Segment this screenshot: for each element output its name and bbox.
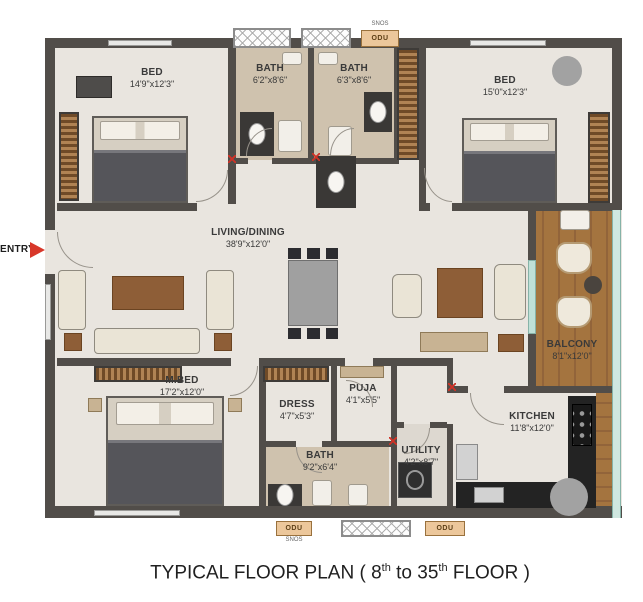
window-mbed <box>94 510 180 516</box>
toilet-icon-bath3 <box>348 484 368 506</box>
room-name: KITCHEN <box>472 410 592 423</box>
wall-living-mbed <box>57 358 231 366</box>
window-bed1 <box>108 40 172 46</box>
wardrobe-dress <box>263 366 329 382</box>
wall-living-puja <box>373 358 449 366</box>
wall-dress-bath3-a <box>259 441 296 447</box>
title-sup: th <box>382 562 391 574</box>
toilet-icon-bath2 <box>364 92 392 132</box>
kitchen-sink-icon <box>474 487 504 503</box>
door-marker <box>228 155 236 163</box>
vent-shaft-bottom <box>341 520 411 537</box>
balcony-chair-2 <box>556 296 592 328</box>
window-bed2 <box>470 40 546 46</box>
sink-icon-bath3 <box>268 484 302 506</box>
nightstand-1 <box>88 398 102 412</box>
label-bed1: BED 14'9"x12'3" <box>92 66 212 91</box>
label-puja: PUJA 4'1"x5'5" <box>324 382 402 407</box>
svcs-text-top: SNOS <box>361 21 399 27</box>
door-marker <box>312 153 320 161</box>
room-dims: 38'9"x12'0" <box>168 239 328 251</box>
wall-living-balcony-a <box>528 203 536 260</box>
label-bath3: BATH 9'2"x6'4" <box>275 449 365 474</box>
door-marker <box>448 383 456 391</box>
wall-bath2-bottom-c <box>354 158 398 164</box>
planter-balcony <box>560 210 590 230</box>
room-name: BATH <box>311 62 397 75</box>
label-utility: UTILITY 4'2"x8'7" <box>380 444 462 469</box>
room-name: BED <box>445 74 565 87</box>
wall-puja-utility <box>391 358 397 508</box>
side-table-3 <box>498 334 524 352</box>
title-text: TYPICAL FLOOR PLAN ( 8 <box>150 562 382 583</box>
wall-shaft-bed2 <box>419 48 426 204</box>
wall-outer-right-upper <box>612 38 622 210</box>
wall-kitchen-top-b <box>504 386 612 393</box>
bed-icon-bed1 <box>92 116 188 203</box>
nightstand-2 <box>228 398 242 412</box>
svcs-text-bottom: SNOS <box>276 537 312 543</box>
room-dims: 11'8"x12'0" <box>472 423 592 435</box>
side-table-1 <box>64 333 82 351</box>
label-bed2: BED 15'0"x12'3" <box>445 74 565 99</box>
room-name: BED <box>92 66 212 79</box>
sofa-long <box>94 328 200 354</box>
wall-utility-top-b <box>430 422 447 428</box>
room-name: BALCONY <box>527 338 617 351</box>
room-dims: 14'9"x12'3" <box>92 79 212 91</box>
accent-chair-1 <box>392 274 422 318</box>
bed-icon-mbed <box>106 396 224 506</box>
kitchen-side-ledge <box>596 390 612 508</box>
label-living: LIVING/DINING 38'9"x12'0" <box>168 226 328 251</box>
wall-bed1-living <box>57 203 197 211</box>
shower-icon-bath3 <box>312 480 332 506</box>
room-dims: 17'2"x12'0" <box>122 387 242 399</box>
vent-shaft-top-1 <box>233 28 291 48</box>
entry-arrow-icon <box>30 242 45 258</box>
odu-unit-bottom-left: ODU <box>276 521 312 536</box>
room-dims: 6'2"x8'6" <box>227 75 313 87</box>
room-dims: 6'3"x8'6" <box>311 75 397 87</box>
balcony-chair-1 <box>556 242 592 274</box>
room-name: LIVING/DINING <box>168 226 328 239</box>
room-dims: 15'0"x12'3" <box>445 87 565 99</box>
wardrobe-bed2 <box>588 112 610 203</box>
wall-outer-left <box>45 38 55 518</box>
plan-title: TYPICAL FLOOR PLAN ( 8th to 35th FLOOR ) <box>80 562 600 584</box>
room-dims: 4'1"x5'5" <box>324 395 402 407</box>
tv-console <box>420 332 488 352</box>
room-name: PUJA <box>324 382 402 395</box>
title-sup: th <box>438 562 447 574</box>
label-balcony: BALCONY 8'1"x12'0" <box>527 338 617 363</box>
rug-living <box>112 276 184 310</box>
bed-icon-bed2 <box>462 118 557 203</box>
service-shaft <box>397 48 419 160</box>
side-table-2 <box>214 333 232 351</box>
window-living <box>45 284 51 340</box>
toilet-icon <box>316 156 356 208</box>
dining-chairs-bottom <box>288 328 338 339</box>
shower-icon-bath1 <box>278 120 302 152</box>
label-kitchen: KITCHEN 11'8"x12'0" <box>472 410 592 435</box>
odu-unit-bottom-right: ODU <box>425 521 465 536</box>
accent-chair-2 <box>494 264 526 320</box>
entry-opening <box>45 230 55 274</box>
room-name: M.BED <box>122 374 242 387</box>
room-dims: 9'2"x6'4" <box>275 462 365 474</box>
wall-lobby-stub <box>419 203 430 211</box>
column-kitchen <box>550 478 588 516</box>
label-bath1: BATH 6'2"x8'6" <box>227 62 313 87</box>
room-name: BATH <box>275 449 365 462</box>
title-text: FLOOR ) <box>448 562 530 583</box>
balcony-sliding-door <box>528 260 536 334</box>
wall-utility-top-a <box>391 422 404 428</box>
room-dims: 4'2"x8'7" <box>380 457 462 469</box>
label-bath2: BATH 6'3"x8'6" <box>311 62 397 87</box>
room-name: BATH <box>227 62 313 75</box>
vent-shaft-top-2 <box>301 28 351 48</box>
puja-shelf <box>340 366 384 378</box>
sofa-right <box>206 270 234 330</box>
room-dims: 4'7"x5'3" <box>257 411 337 423</box>
room-name: UTILITY <box>380 444 462 457</box>
balcony-table <box>584 276 602 294</box>
rug-sitout <box>437 268 483 318</box>
label-mbed: M.BED 17'2"x12'0" <box>122 374 242 399</box>
dining-table <box>288 260 338 326</box>
room-dims: 8'1"x12'0" <box>527 351 617 363</box>
odu-unit-top: ODU <box>361 30 399 47</box>
title-text: to 35 <box>391 562 439 583</box>
sofa-left <box>58 270 86 330</box>
balcony-glass-railing <box>612 210 621 518</box>
wardrobe-bed1 <box>59 112 79 201</box>
floor-plan-canvas: BED 14'9"x12'3" BATH 6'2"x8'6" BATH 6'3"… <box>0 0 643 602</box>
